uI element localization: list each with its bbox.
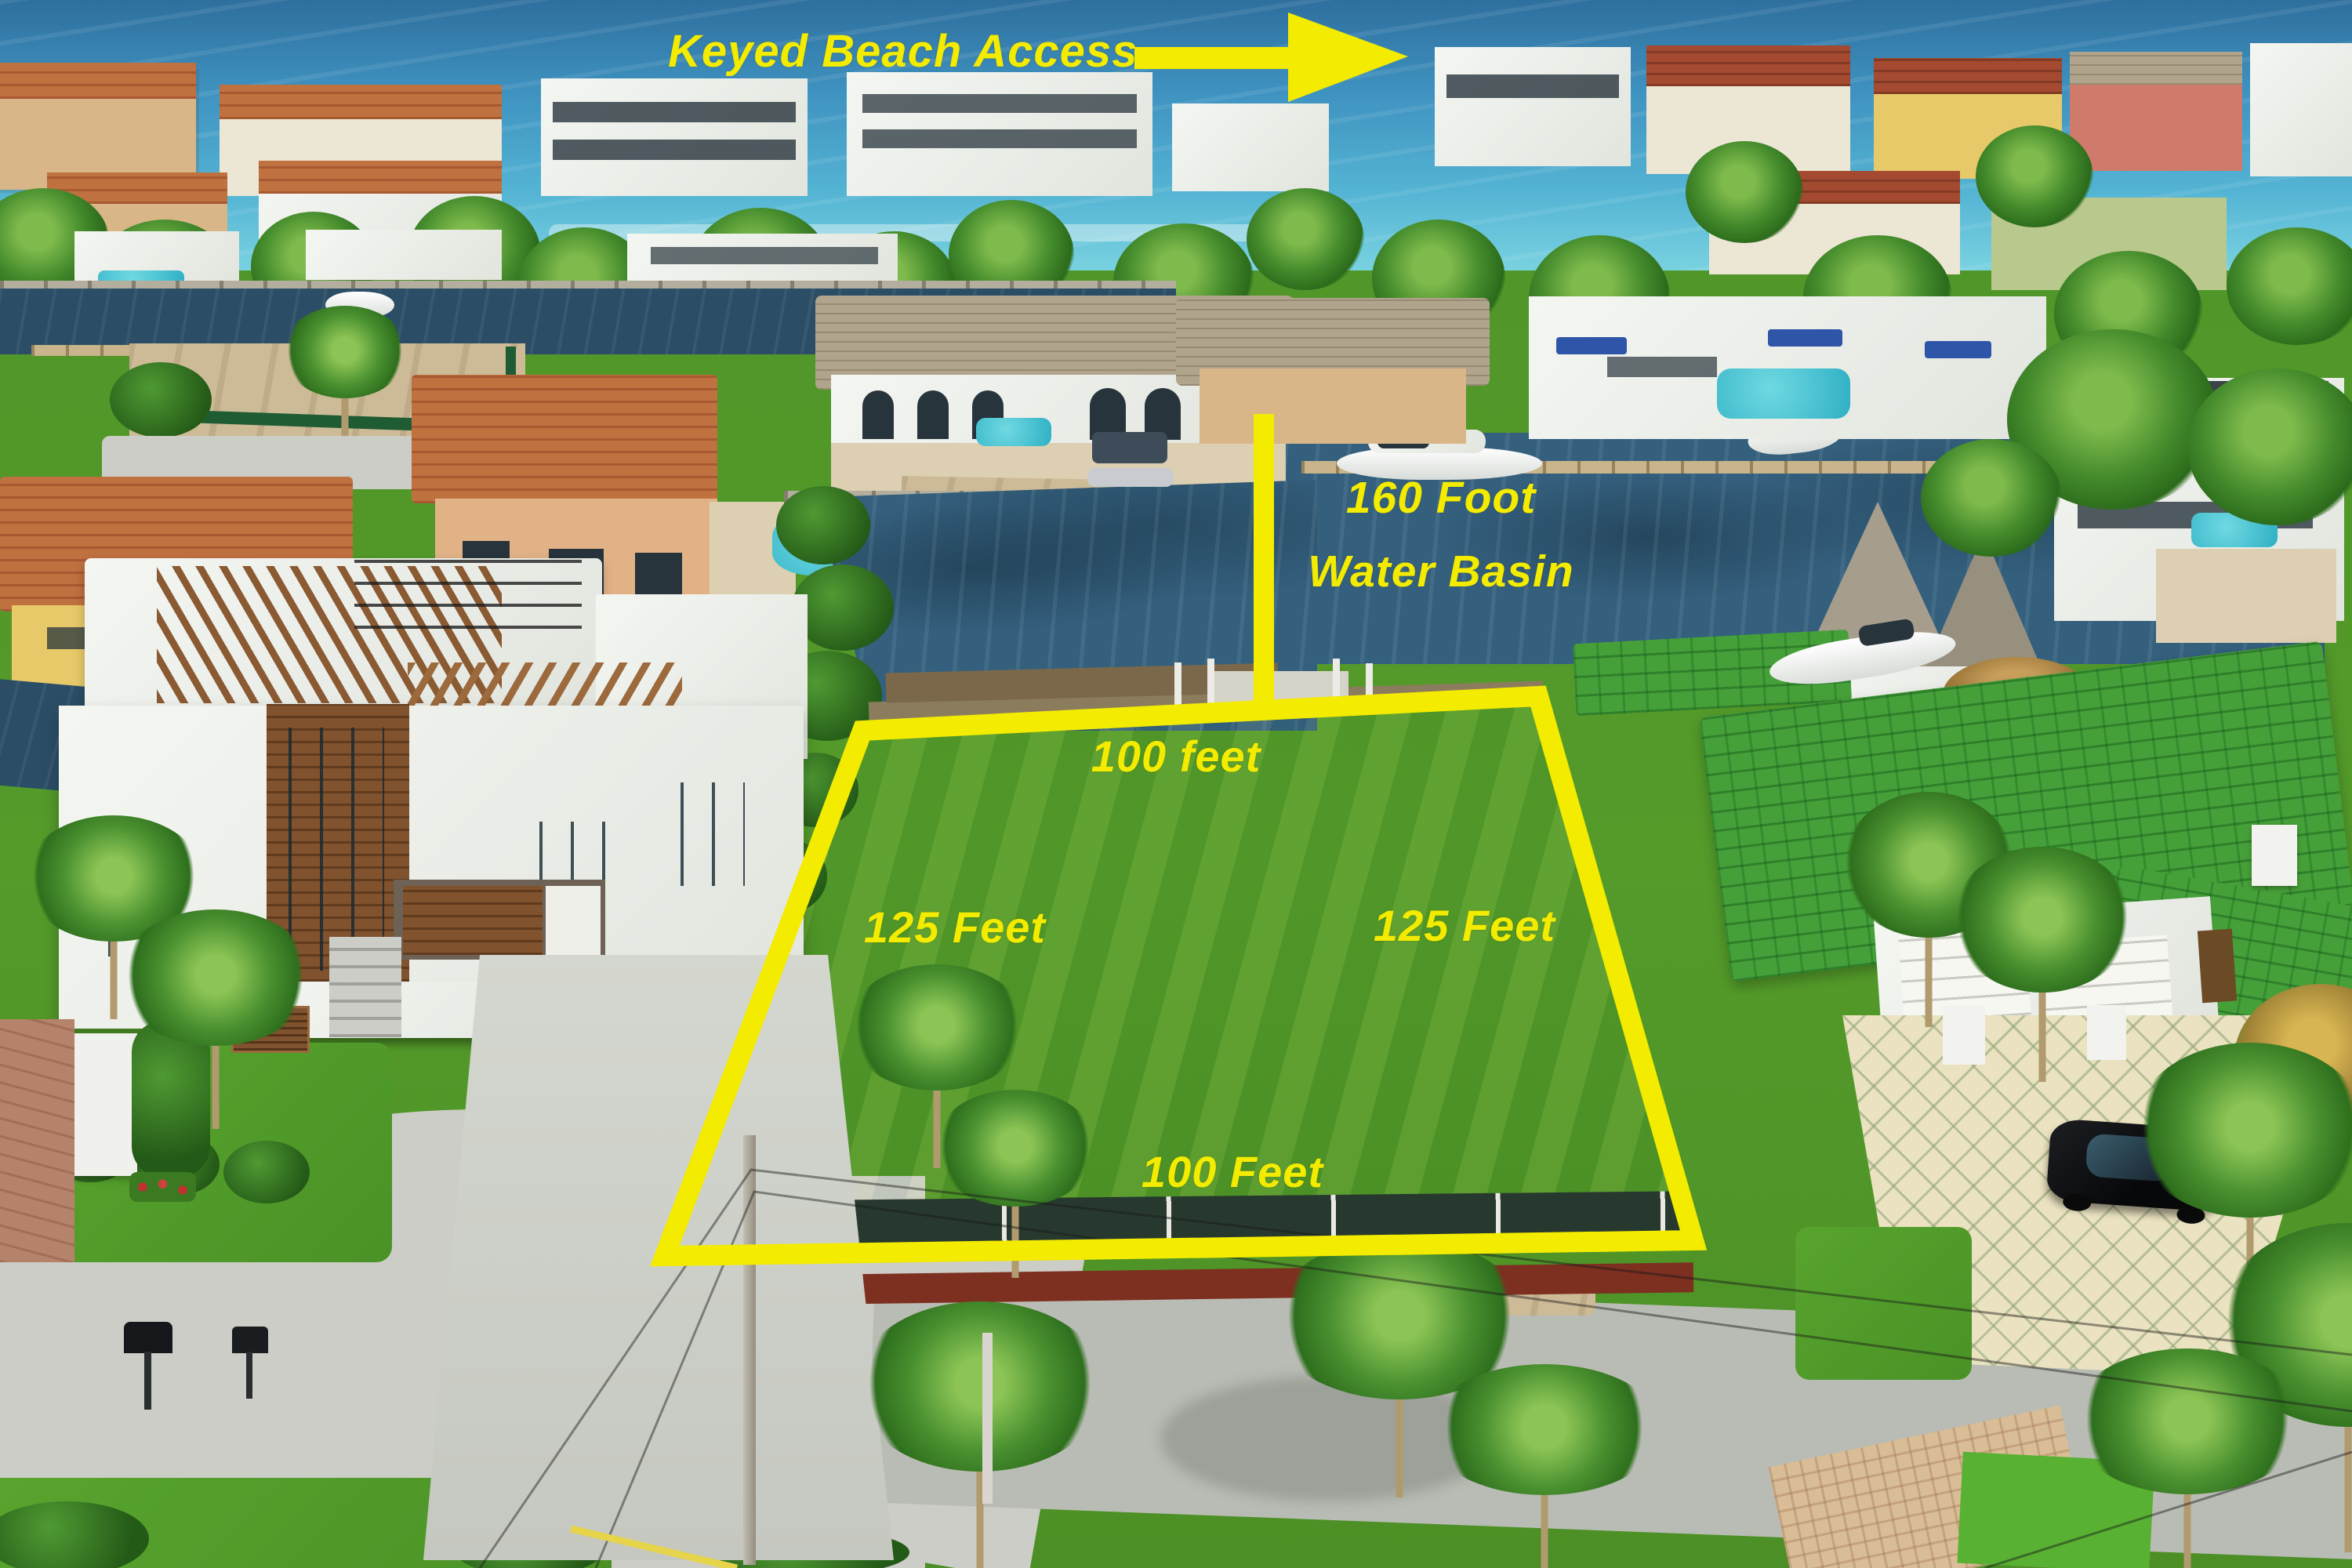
- annotation-overlay: [0, 0, 2352, 1568]
- lot-dimension-left: 125 Feet: [864, 902, 1046, 953]
- aerial-photo: Keyed Beach Access 160 Foot Water Basin …: [0, 0, 2352, 1568]
- guy-wire: [571, 1529, 737, 1568]
- water-basin-label-line2: Water Basin: [1292, 535, 1590, 608]
- water-basin-label: 160 Foot Water Basin: [1292, 461, 1590, 608]
- lot-dimension-bottom: 100 Feet: [1142, 1146, 1323, 1197]
- arrow-right-icon: [1134, 13, 1408, 102]
- power-line: [1985, 1452, 2352, 1568]
- water-basin-label-line1: 160 Foot: [1292, 461, 1590, 535]
- power-line: [480, 1170, 2352, 1568]
- beach-access-label: Keyed Beach Access: [668, 25, 1138, 78]
- lot-dimension-right: 125 Feet: [1374, 900, 1555, 951]
- lot-dimension-top: 100 feet: [1091, 731, 1261, 782]
